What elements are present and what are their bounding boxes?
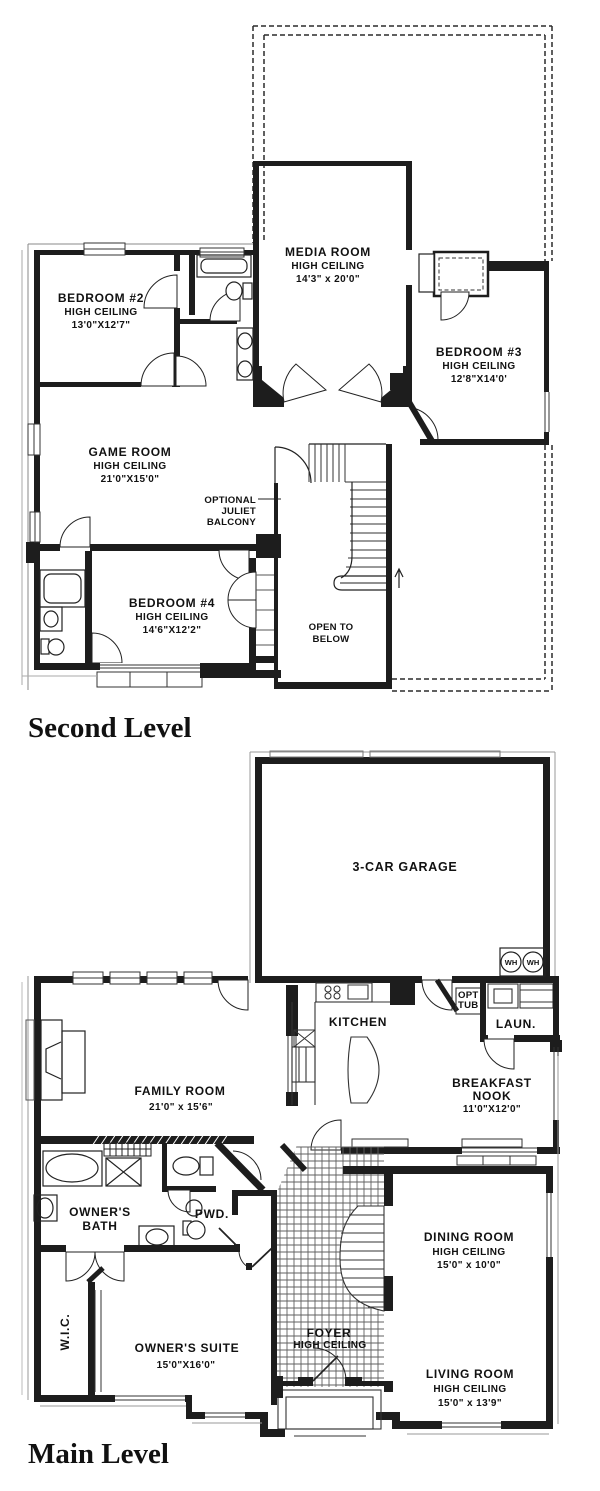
svg-text:HIGH CEILING: HIGH CEILING bbox=[135, 612, 208, 623]
svg-text:HIGH CEILING: HIGH CEILING bbox=[432, 1247, 505, 1258]
svg-text:GAME ROOM: GAME ROOM bbox=[89, 445, 172, 459]
svg-text:BEDROOM #2: BEDROOM #2 bbox=[58, 291, 144, 305]
svg-text:BREAKFAST: BREAKFAST bbox=[452, 1076, 532, 1090]
svg-text:FOYER: FOYER bbox=[307, 1326, 352, 1340]
svg-text:15'0" x 10'0": 15'0" x 10'0" bbox=[437, 1260, 501, 1271]
svg-text:BELOW: BELOW bbox=[313, 634, 351, 645]
svg-text:OWNER'S SUITE: OWNER'S SUITE bbox=[135, 1341, 240, 1355]
svg-text:W.I.C.: W.I.C. bbox=[58, 1314, 72, 1351]
svg-text:MEDIA ROOM: MEDIA ROOM bbox=[285, 245, 371, 259]
svg-text:JULIET: JULIET bbox=[221, 506, 256, 517]
svg-text:HIGH CEILING: HIGH CEILING bbox=[433, 1384, 506, 1395]
svg-text:12'8"X14'0': 12'8"X14'0' bbox=[451, 374, 507, 385]
svg-text:3-CAR GARAGE: 3-CAR GARAGE bbox=[353, 860, 458, 874]
svg-text:BATH: BATH bbox=[82, 1219, 117, 1233]
svg-text:HIGH CEILING: HIGH CEILING bbox=[64, 307, 137, 318]
svg-text:LAUN.: LAUN. bbox=[496, 1017, 536, 1031]
svg-text:Main Level: Main Level bbox=[28, 1438, 169, 1470]
svg-text:15'0" x 13'9": 15'0" x 13'9" bbox=[438, 1398, 502, 1409]
svg-text:OPEN TO: OPEN TO bbox=[309, 622, 354, 633]
svg-text:BEDROOM #4: BEDROOM #4 bbox=[129, 596, 215, 610]
svg-text:Second Level: Second Level bbox=[28, 712, 192, 744]
svg-text:14'6"X12'2": 14'6"X12'2" bbox=[143, 625, 202, 636]
svg-text:KITCHEN: KITCHEN bbox=[329, 1015, 387, 1029]
svg-text:FAMILY ROOM: FAMILY ROOM bbox=[134, 1084, 225, 1098]
svg-text:HIGH CEILING: HIGH CEILING bbox=[442, 361, 515, 372]
svg-text:BALCONY: BALCONY bbox=[207, 517, 257, 528]
svg-text:HIGH CEILING: HIGH CEILING bbox=[291, 261, 364, 272]
svg-text:14'3" x 20'0": 14'3" x 20'0" bbox=[296, 274, 360, 285]
svg-text:BEDROOM #3: BEDROOM #3 bbox=[436, 345, 522, 359]
svg-text:DINING ROOM: DINING ROOM bbox=[424, 1230, 514, 1244]
svg-text:NOOK: NOOK bbox=[473, 1089, 512, 1103]
svg-text:HIGH CEILING: HIGH CEILING bbox=[93, 461, 166, 472]
svg-text:13'0"X12'7": 13'0"X12'7" bbox=[72, 320, 131, 331]
svg-text:15'0"X16'0": 15'0"X16'0" bbox=[157, 1360, 216, 1371]
svg-text:LIVING ROOM: LIVING ROOM bbox=[426, 1367, 514, 1381]
svg-text:HIGH CEILING: HIGH CEILING bbox=[293, 1340, 366, 1351]
svg-text:WH: WH bbox=[527, 958, 540, 967]
svg-text:21'0" x 15'6": 21'0" x 15'6" bbox=[149, 1102, 213, 1113]
svg-text:WH: WH bbox=[505, 958, 518, 967]
svg-text:OPTIONAL: OPTIONAL bbox=[204, 495, 256, 506]
svg-text:21'0"X15'0": 21'0"X15'0" bbox=[101, 474, 160, 485]
svg-text:11'0"X12'0": 11'0"X12'0" bbox=[463, 1104, 521, 1115]
svg-text:OWNER'S: OWNER'S bbox=[69, 1205, 131, 1219]
svg-text:TUB: TUB bbox=[458, 1000, 478, 1011]
